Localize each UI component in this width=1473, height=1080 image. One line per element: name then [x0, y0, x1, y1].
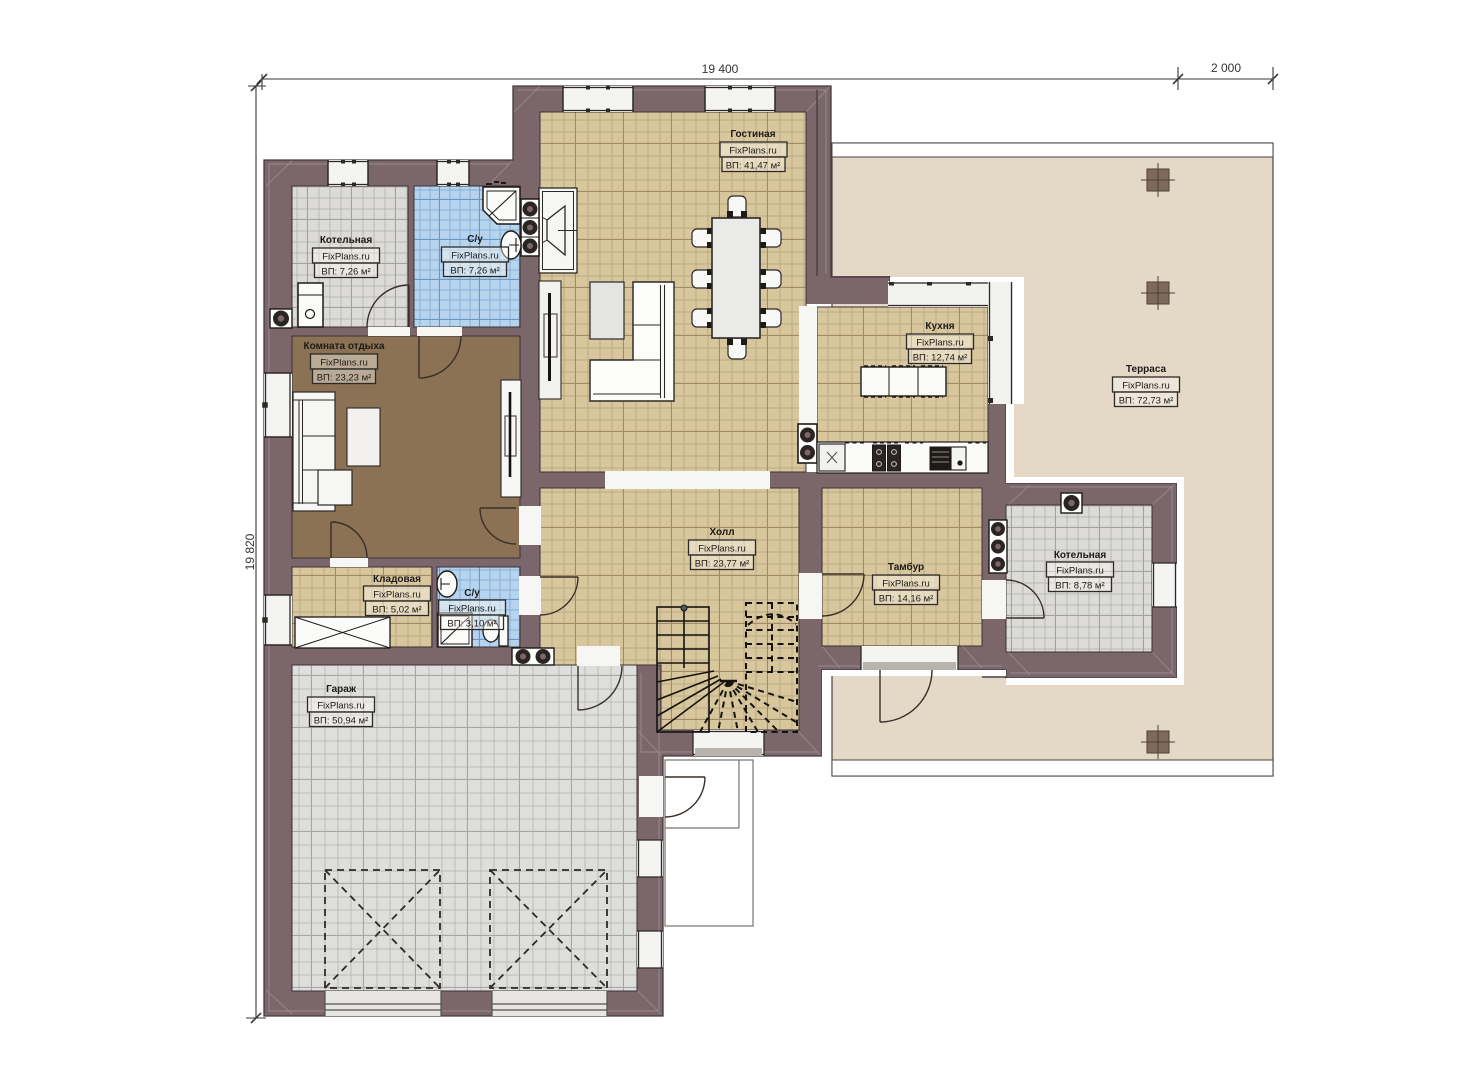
svg-text:FixPlans.ru: FixPlans.ru: [916, 338, 964, 349]
svg-text:Терраса: Терраса: [1126, 364, 1167, 375]
svg-text:FixPlans.ru: FixPlans.ru: [317, 701, 365, 712]
svg-text:ВП: 8,78 м²: ВП: 8,78 м²: [1055, 581, 1104, 592]
svg-text:ВП: 5,02 м²: ВП: 5,02 м²: [372, 605, 421, 616]
svg-text:Гостиная: Гостиная: [730, 129, 775, 140]
svg-text:FixPlans.ru: FixPlans.ru: [373, 590, 421, 601]
svg-text:Холл: Холл: [709, 527, 734, 538]
svg-text:ВП: 3,10 м²: ВП: 3,10 м²: [447, 619, 496, 630]
svg-text:ВП: 41,47 м²: ВП: 41,47 м²: [726, 161, 781, 172]
svg-text:Комната отдыха: Комната отдыха: [304, 341, 385, 352]
svg-text:2 000: 2 000: [1211, 61, 1241, 75]
svg-text:ВП: 23,77 м²: ВП: 23,77 м²: [695, 559, 750, 570]
svg-text:Гараж: Гараж: [326, 684, 357, 695]
svg-text:С/у: С/у: [467, 234, 483, 245]
svg-text:FixPlans.ru: FixPlans.ru: [451, 251, 499, 262]
svg-text:Кухня: Кухня: [925, 321, 954, 332]
svg-text:ВП: 50,94 м²: ВП: 50,94 м²: [314, 716, 369, 727]
svg-text:Котельная: Котельная: [1054, 550, 1107, 561]
svg-text:19 820: 19 820: [243, 533, 257, 570]
svg-text:FixPlans.ru: FixPlans.ru: [729, 146, 777, 157]
svg-text:Тамбур: Тамбур: [888, 561, 924, 573]
svg-text:ВП: 12,74 м²: ВП: 12,74 м²: [913, 353, 968, 364]
svg-text:Кладовая: Кладовая: [373, 574, 421, 585]
svg-text:ВП: 23,23 м²: ВП: 23,23 м²: [317, 373, 372, 384]
svg-text:FixPlans.ru: FixPlans.ru: [882, 579, 930, 590]
svg-text:FixPlans.ru: FixPlans.ru: [698, 544, 746, 555]
svg-text:19 400: 19 400: [702, 62, 739, 76]
svg-text:ВП: 7,26 м²: ВП: 7,26 м²: [450, 266, 499, 277]
svg-text:FixPlans.ru: FixPlans.ru: [322, 252, 370, 263]
svg-text:FixPlans.ru: FixPlans.ru: [1056, 566, 1104, 577]
svg-text:FixPlans.ru: FixPlans.ru: [1122, 381, 1170, 392]
svg-text:ВП: 72,73 м²: ВП: 72,73 м²: [1119, 396, 1174, 407]
svg-text:ВП: 14,16 м²: ВП: 14,16 м²: [879, 594, 934, 605]
svg-text:С/у: С/у: [464, 588, 480, 599]
svg-text:Котельная: Котельная: [320, 235, 373, 246]
svg-text:FixPlans.ru: FixPlans.ru: [448, 604, 496, 615]
svg-text:FixPlans.ru: FixPlans.ru: [320, 358, 368, 369]
svg-text:ВП: 7,26 м²: ВП: 7,26 м²: [321, 267, 370, 278]
